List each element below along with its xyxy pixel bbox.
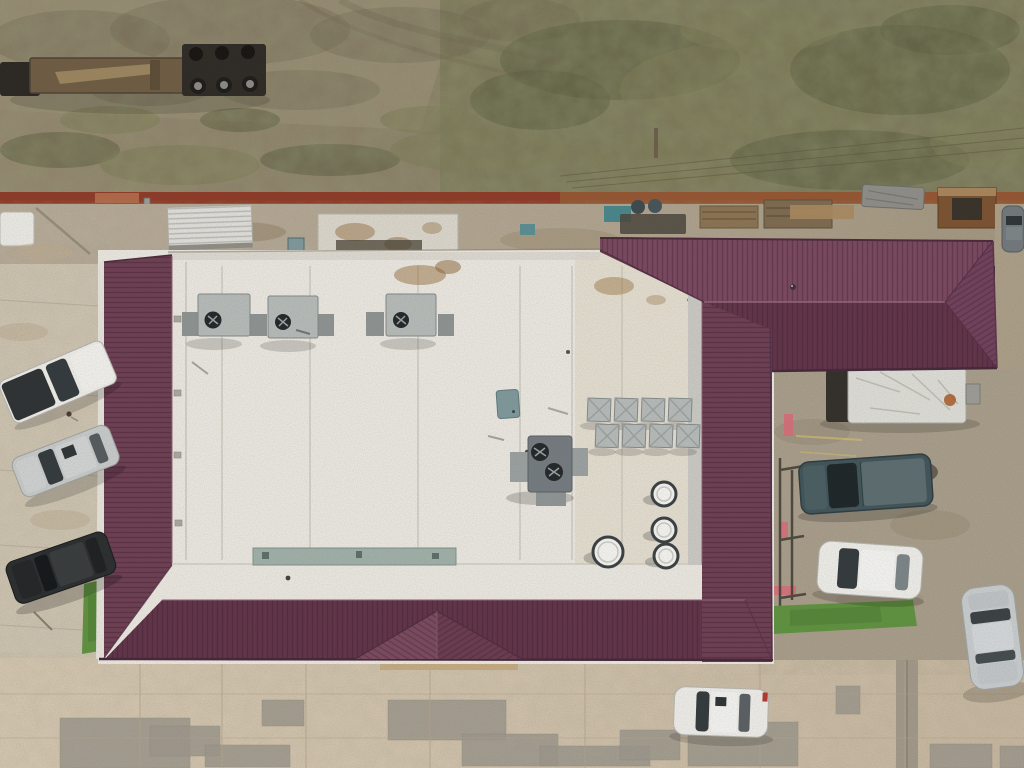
aerial-photo	[0, 0, 1024, 768]
film-grain	[0, 0, 1024, 768]
aerial-photo-stage	[0, 0, 1024, 768]
